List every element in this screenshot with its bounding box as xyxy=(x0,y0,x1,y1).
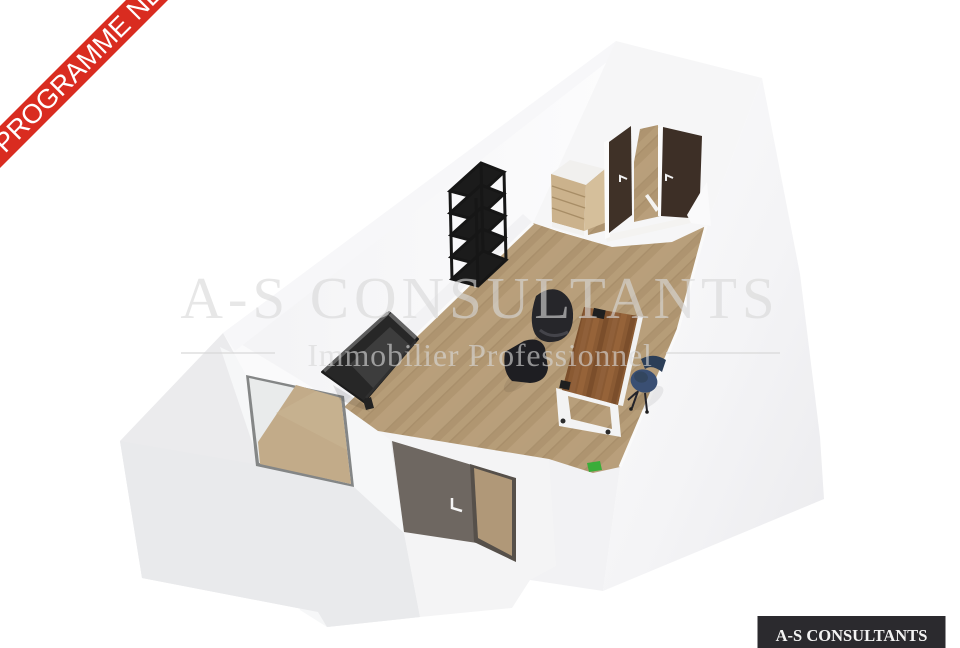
svg-text:A-S CONSULTANTS: A-S CONSULTANTS xyxy=(180,265,779,331)
svg-text:Immobilier Professionnel: Immobilier Professionnel xyxy=(307,337,652,373)
svg-text:A-S CONSULTANTS: A-S CONSULTANTS xyxy=(776,626,928,645)
